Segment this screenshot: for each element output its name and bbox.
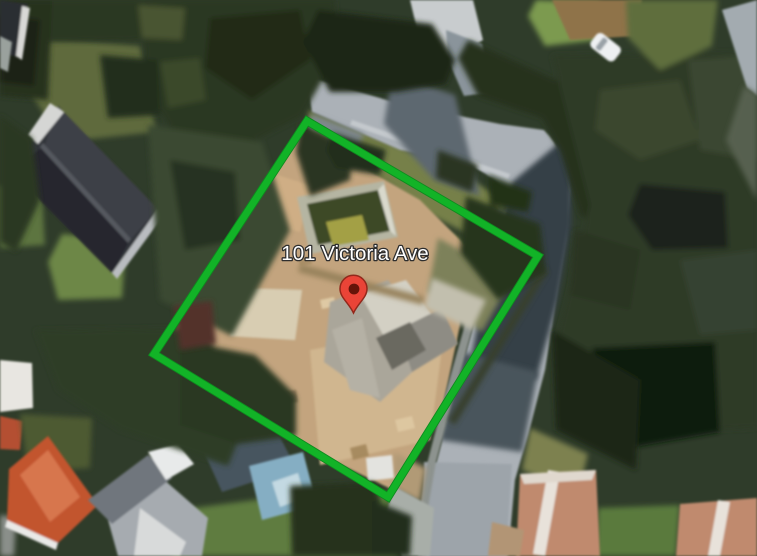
svg-text:101 Victoria Ave: 101 Victoria Ave	[281, 242, 428, 265]
